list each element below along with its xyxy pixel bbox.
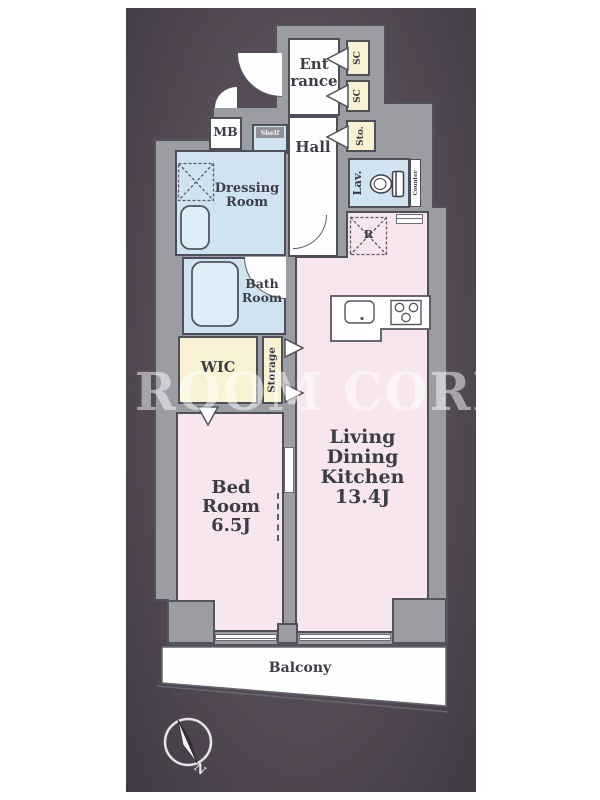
- center-pillar: [277, 623, 298, 644]
- dressing-room-label: Dressing Room: [207, 182, 287, 211]
- hall-label: Hall: [288, 139, 338, 156]
- refrigerator-label: R: [350, 228, 387, 241]
- bedroom-window: [215, 634, 277, 641]
- counter-label: Counter: [413, 171, 419, 196]
- left-corner-pillar: [167, 600, 215, 644]
- meter-box-label: MB: [209, 125, 242, 139]
- shelf-label: Shelf: [256, 127, 284, 138]
- ldk-window: [299, 634, 391, 641]
- shoe-closet-upper-label: SC: [353, 51, 363, 65]
- lavatory-label: Lav.: [350, 170, 364, 195]
- east-wall-window: [396, 214, 423, 224]
- right-corner-pillar: [392, 598, 447, 644]
- ldk-label: Living Dining Kitchen 13.4J: [300, 428, 425, 508]
- sto-label: Sto.: [356, 126, 366, 146]
- window-glass-line: [397, 218, 422, 219]
- window-glass-line: [216, 638, 276, 639]
- bedroom-label: Bed Room 6.5J: [176, 479, 286, 536]
- balcony-label: Balcony: [250, 661, 350, 676]
- entrance-label: Ent rance: [282, 56, 346, 89]
- bath-room-label: Bath Room: [238, 277, 286, 305]
- shoe-closet-lower-label: SC: [353, 89, 363, 103]
- window-glass-line: [300, 638, 390, 639]
- floor-plan-page: Ent rance Hall SC SC Sto. Lav. Counter M…: [0, 0, 600, 800]
- watermark-text: ROOM CORE: [135, 362, 468, 423]
